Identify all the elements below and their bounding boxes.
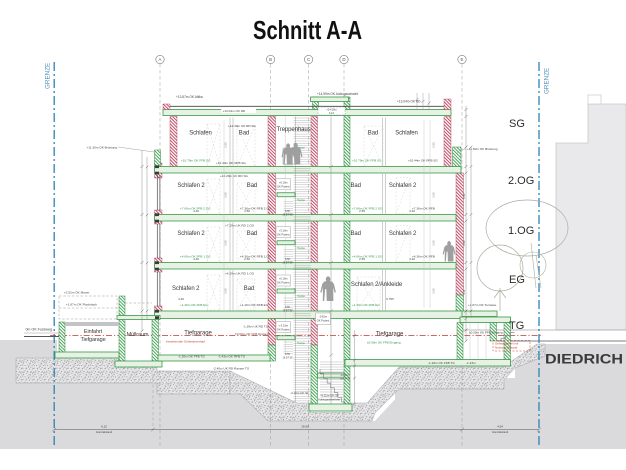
- svg-text:+3.19m: +3.19m: [279, 228, 288, 232]
- svg-text:Schnitt A-A: Schnitt A-A: [253, 15, 362, 45]
- svg-text:+1.67m OK Terrasse: +1.67m OK Terrasse: [468, 303, 497, 307]
- svg-text:+10.44m OK RFB SG: +10.44m OK RFB SG: [408, 159, 438, 163]
- svg-text:-1.43m OK RFB TG: -1.43m OK RFB TG: [218, 355, 246, 359]
- svg-text:6.22: 6.22: [101, 425, 107, 429]
- svg-text:4.64: 4.64: [497, 425, 503, 429]
- svg-text:16.5/7.06: 16.5/7.06: [283, 310, 294, 313]
- svg-text:4.40: 4.40: [193, 257, 199, 261]
- svg-text:-2.40m UK RD-Rampe TG: -2.40m UK RD-Rampe TG: [213, 366, 250, 370]
- svg-text:Tiefgarage: Tiefgarage: [184, 331, 212, 337]
- svg-text:2.60: 2.60: [223, 142, 227, 148]
- svg-text:2.82: 2.82: [462, 240, 466, 246]
- svg-text:+6.19m: +6.19m: [279, 180, 288, 184]
- svg-text:GRENZE: GRENZE: [45, 63, 52, 89]
- svg-text:0m OK Fussweg: 0m OK Fussweg: [25, 328, 52, 332]
- svg-text:2.60: 2.60: [223, 240, 227, 246]
- svg-text:Schlafen 2: Schlafen 2: [389, 231, 417, 237]
- svg-text:EG: EG: [509, 274, 525, 286]
- svg-text:+10.79m OK FFB SG: +10.79m OK FFB SG: [352, 159, 382, 163]
- svg-text:SG: SG: [509, 118, 525, 130]
- svg-text:+7.66m OK FFB 2.OG: +7.66m OK FFB 2.OG: [352, 207, 383, 211]
- svg-text:OK Podest: OK Podest: [277, 232, 290, 236]
- svg-text:Aufzugsunterfahrt: Aufzugsunterfahrt: [318, 398, 340, 402]
- svg-text:+7.29m UK RD 2.OG: +7.29m UK RD 2.OG: [225, 224, 255, 228]
- svg-text:Schlafen 2: Schlafen 2: [177, 231, 205, 237]
- svg-text:A: A: [159, 57, 162, 62]
- svg-text:16.5/7.06: 16.5/7.06: [283, 213, 294, 216]
- svg-text:±0.00m OK FFB Eingang: ±0.00m OK FFB Eingang: [235, 332, 270, 336]
- svg-text:OK Podest: OK Podest: [277, 327, 290, 331]
- svg-text:+1.16m OK RFB EG: +1.16m OK RFB EG: [240, 303, 269, 307]
- svg-text:B: B: [269, 57, 272, 62]
- svg-text:Bad: Bad: [239, 131, 249, 137]
- svg-text:Bad: Bad: [244, 286, 254, 292]
- svg-text:Nutzung Bestand: Nutzung Bestand: [495, 346, 518, 350]
- svg-text:Bad: Bad: [368, 131, 378, 137]
- svg-text:+1.46m OK FFB EG: +1.46m OK FFB EG: [180, 303, 208, 307]
- svg-text:-4.10m UK SF: -4.10m UK SF: [290, 391, 309, 395]
- svg-text:19.00: 19.00: [301, 425, 309, 429]
- svg-text:Einfahrt: Einfahrt: [84, 329, 103, 335]
- svg-text:2.60: 2.60: [432, 240, 436, 246]
- svg-text:3.11: 3.11: [462, 289, 466, 295]
- svg-text:2.60: 2.60: [432, 288, 436, 294]
- svg-text:2.60: 2.60: [223, 192, 227, 198]
- svg-text:+10.79m OK FFB SG: +10.79m OK FFB SG: [181, 159, 211, 163]
- svg-text:Treppe: Treppe: [297, 342, 305, 345]
- svg-text:+1.46m OK FFB EG: +1.46m OK FFB EG: [352, 303, 380, 307]
- svg-text:+10.44m OK RFB SG: +10.44m OK RFB SG: [216, 161, 246, 165]
- svg-text:Treppe: Treppe: [297, 295, 305, 298]
- svg-text:C: C: [307, 57, 310, 62]
- svg-text:±0.00m OK FFB Eingang: ±0.00m OK FFB Eingang: [469, 331, 503, 335]
- svg-text:+2.52m OK Mauer: +2.52m OK Mauer: [64, 291, 89, 295]
- svg-text:+11.30m OK Brüstung: +11.30m OK Brüstung: [87, 146, 118, 150]
- svg-text:14.0: 14.0: [329, 111, 335, 115]
- svg-text:+1.67m OK Flachdach: +1.67m OK Flachdach: [66, 303, 97, 307]
- svg-text:+10.29m UK RD SG: +10.29m UK RD SG: [220, 174, 249, 178]
- svg-text:OK Podest: OK Podest: [277, 184, 290, 188]
- svg-text:4.20: 4.20: [409, 257, 415, 261]
- svg-text:+-3.19m: +-3.19m: [278, 323, 288, 327]
- svg-text:-1.20m OK FFB TG: -1.20m OK FFB TG: [178, 355, 205, 359]
- svg-text:2.82: 2.82: [462, 193, 466, 199]
- svg-text:2.60: 2.60: [223, 288, 227, 294]
- svg-text:2.60: 2.60: [432, 192, 436, 198]
- svg-text:Schlafen: Schlafen: [189, 131, 212, 137]
- svg-text:2.59: 2.59: [359, 257, 365, 261]
- svg-text:Grenzabstand: Grenzabstand: [96, 430, 113, 434]
- svg-text:-1.20m OK FFB TG: -1.20m OK FFB TG: [428, 361, 455, 365]
- svg-text:+13.04m OK RD: +13.04m OK RD: [223, 109, 247, 113]
- svg-text:Bad: Bad: [247, 183, 257, 189]
- svg-text:+13.04m OK RD: +13.04m OK RD: [397, 100, 421, 104]
- svg-text:16.5/7.06: 16.5/7.06: [283, 261, 294, 264]
- svg-text:16.5/7.06: 16.5/7.06: [283, 356, 294, 359]
- svg-text:Treppenhaus: Treppenhaus: [276, 127, 310, 133]
- svg-text:Bad: Bad: [351, 231, 361, 237]
- svg-text:2.59: 2.59: [244, 209, 250, 213]
- svg-text:2.OG: 2.OG: [508, 175, 534, 187]
- svg-text:bestehender Geländeverlauf: bestehender Geländeverlauf: [166, 340, 205, 344]
- svg-text:GRENZE: GRENZE: [544, 68, 551, 94]
- svg-text:+4.66m OK FFB 1.OG: +4.66m OK FFB 1.OG: [352, 255, 383, 259]
- svg-text:+13.87m OK Attika: +13.87m OK Attika: [176, 95, 203, 99]
- svg-text:+7.36m OK RFB: +7.36m OK RFB: [412, 207, 435, 211]
- svg-text:+12.39m UK RD SG: +12.39m UK RD SG: [228, 124, 257, 128]
- svg-text:-0.81m: -0.81m: [319, 315, 327, 319]
- svg-text:+4.36m OK RFB: +4.36m OK RFB: [412, 255, 435, 259]
- svg-text:+0.19m: +0.19m: [279, 277, 288, 281]
- svg-text:2.59: 2.59: [244, 257, 250, 261]
- svg-text:Schlafen 2/Ankleide: Schlafen 2/Ankleide: [351, 282, 403, 288]
- svg-text:OK Podest: OK Podest: [277, 281, 290, 285]
- svg-text:Treppe: Treppe: [297, 247, 305, 250]
- svg-text:Tiefgarage: Tiefgarage: [80, 337, 105, 343]
- svg-text:4.40: 4.40: [193, 209, 199, 213]
- svg-text:D: D: [342, 57, 345, 62]
- svg-text:OK FFB: OK FFB: [340, 377, 350, 381]
- svg-text:+4.29m UK RD 1.OG: +4.29m UK RD 1.OG: [225, 272, 255, 276]
- svg-text:4.40: 4.40: [178, 297, 184, 301]
- svg-text:Schlafen: Schlafen: [395, 131, 418, 137]
- svg-text:4.20: 4.20: [409, 209, 415, 213]
- svg-text:Schlafen 2: Schlafen 2: [389, 183, 417, 189]
- svg-text:+11.50m OK Brüstung: +11.50m OK Brüstung: [467, 147, 498, 151]
- svg-text:±0.00m OK FFB Eingang: ±0.00m OK FFB Eingang: [367, 341, 401, 345]
- svg-text:+14.59m OK Aufzugsschacht: +14.59m OK Aufzugsschacht: [317, 92, 358, 96]
- svg-text:E: E: [461, 57, 464, 62]
- svg-text:Grenzabstand: Grenzabstand: [492, 430, 509, 434]
- svg-text:Bad: Bad: [351, 183, 361, 189]
- svg-text:2.59: 2.59: [359, 209, 365, 213]
- svg-text:6.755: 6.755: [386, 297, 394, 301]
- svg-text:-1.39m UK RD TG: -1.39m UK RD TG: [243, 325, 269, 329]
- svg-text:1.OG: 1.OG: [508, 225, 534, 237]
- svg-text:Schlafen 2: Schlafen 2: [177, 183, 205, 189]
- svg-text:Bad: Bad: [247, 231, 257, 237]
- svg-text:2.60: 2.60: [432, 142, 436, 148]
- svg-text:Müllraum: Müllraum: [127, 332, 149, 338]
- svg-text:Treppe: Treppe: [297, 199, 305, 202]
- svg-text:DIEDRICH: DIEDRICH: [545, 351, 623, 367]
- svg-text:-1.43m: -1.43m: [466, 361, 476, 365]
- svg-text:Tiefgarage: Tiefgarage: [376, 332, 404, 338]
- svg-text:Schlafen 2: Schlafen 2: [172, 286, 200, 292]
- svg-text:TG: TG: [509, 320, 524, 332]
- svg-text:OK Podest: OK Podest: [317, 319, 330, 323]
